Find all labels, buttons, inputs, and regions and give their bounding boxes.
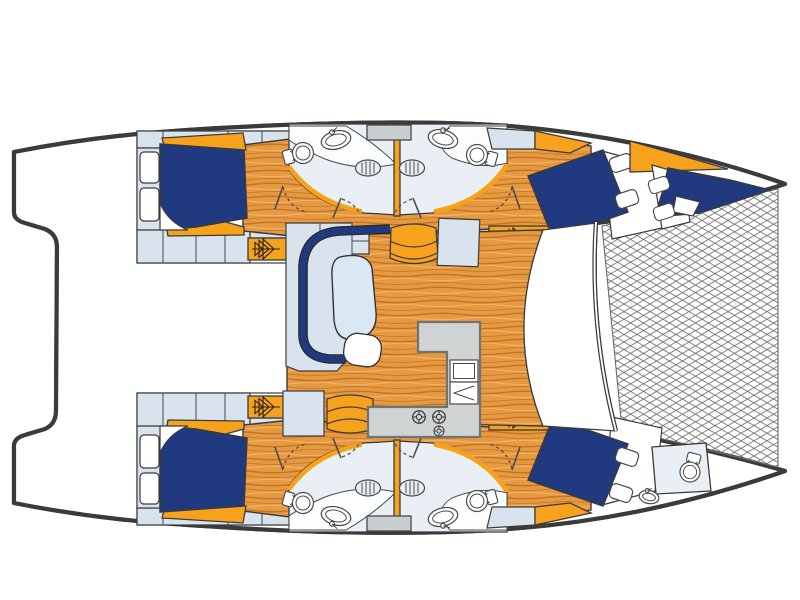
saloon-table [332, 255, 376, 339]
floor-plan-canvas [0, 0, 800, 600]
chart-seat [437, 218, 480, 266]
upholstered-seat-aft [327, 395, 373, 433]
seat-pod [342, 332, 383, 369]
upholstered-seat-forward [390, 224, 438, 264]
aft-bench [283, 391, 324, 436]
foredeck-wedge [630, 141, 728, 172]
catamaran-floor-plan [0, 0, 800, 600]
saloon-and-galley [283, 218, 616, 437]
forward-deck-area [524, 223, 616, 431]
